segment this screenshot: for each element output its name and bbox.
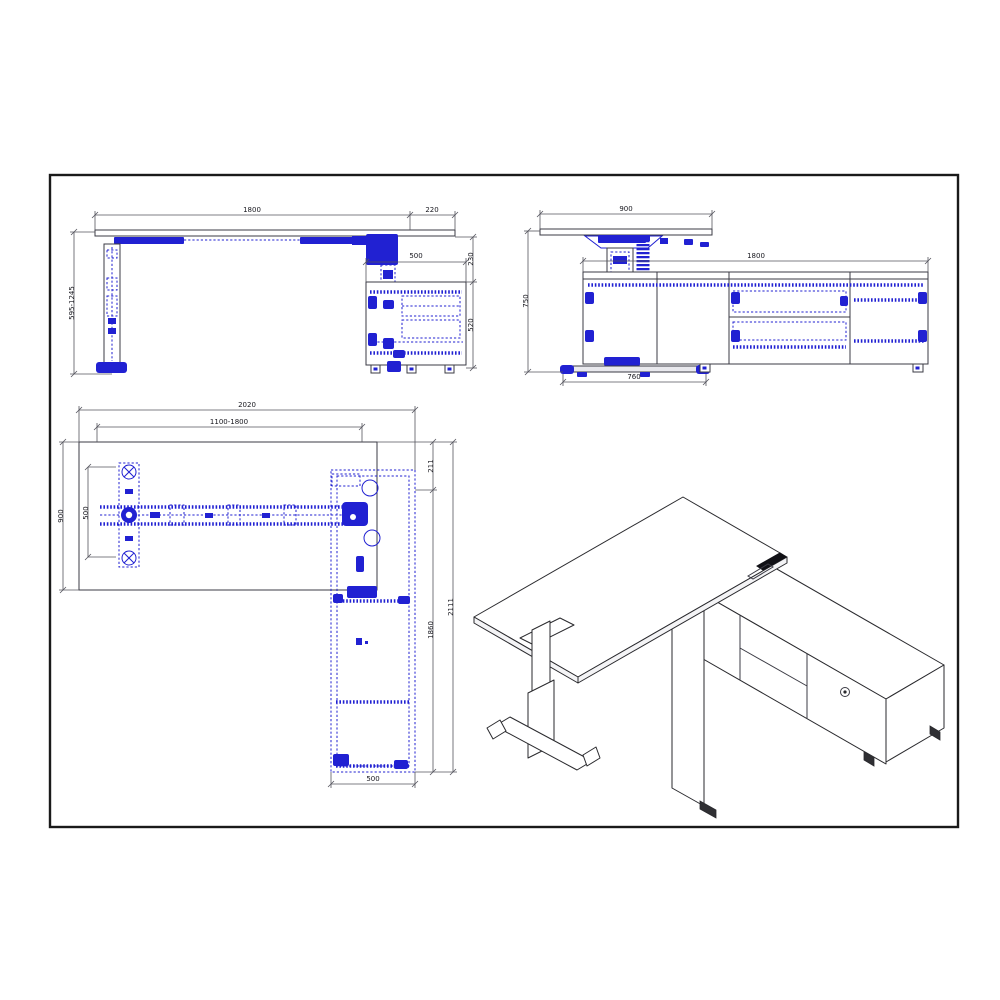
side-foot-plate: [563, 366, 708, 372]
dim-plan-overall-length: 2020: [238, 401, 256, 409]
hinge-icon: [368, 296, 377, 309]
side-desk-top: [540, 229, 712, 235]
iso-foot: [700, 801, 716, 818]
front-left-foot: [96, 362, 127, 373]
hinge-icon: [918, 330, 927, 342]
isometric-view: [474, 497, 944, 818]
hinge-icon: [585, 330, 594, 342]
front-cabinet-feet: [371, 365, 454, 373]
dim-front-top-width: 1800: [243, 206, 261, 214]
hinge-icon: [731, 292, 740, 304]
dim-side-top-depth: 900: [619, 205, 632, 213]
front-cabinet: [366, 282, 466, 373]
iso-t-foot-cap: [583, 747, 600, 766]
plan-view: 2020 1100-1800 900 500 211 1860 2111: [57, 401, 457, 788]
drawing-sheet: 1800 220 500 230 520 595-1245: [0, 0, 1000, 1000]
dim-front-cabinet-height: 520: [467, 318, 475, 331]
dim-plan-return-width: 500: [366, 775, 379, 783]
side-elevation-view: 900 1800 750 760: [522, 205, 931, 386]
side-cabinet: [583, 272, 928, 364]
dim-side-foot-length: 760: [627, 373, 640, 381]
dim-front-gap: 230: [467, 252, 475, 265]
side-column-foot: [604, 357, 640, 366]
dim-plan-top-depth: 900: [57, 509, 65, 522]
front-left-leg: [96, 244, 127, 373]
dim-front-height-range: 595-1245: [68, 286, 76, 320]
dim-side-height: 750: [522, 294, 530, 307]
cad-drawing-canvas: 1800 220 500 230 520 595-1245: [0, 0, 1000, 1000]
hinge-icon: [585, 292, 594, 304]
front-desk-top: [95, 230, 455, 236]
front-elevation-view: 1800 220 500 230 520 595-1245: [68, 206, 477, 377]
hinge-icon: [918, 292, 927, 304]
dim-plan-overall-depth: 2111: [447, 598, 455, 616]
dim-plan-adjustable-span: 1100-1800: [210, 418, 248, 426]
dim-plan-corner-offset: 211: [427, 459, 435, 472]
dim-plan-return-length: 1860: [427, 621, 435, 639]
hinge-icon: [368, 333, 377, 346]
plan-cabinet-mark: [356, 638, 362, 645]
dim-side-cabinet-length: 1800: [747, 252, 765, 260]
dim-front-cabinet-width: 500: [409, 252, 422, 260]
dim-front-overhang: 220: [425, 206, 438, 214]
dim-plan-foot-span: 500: [82, 506, 90, 519]
front-underframe-hardware: [114, 234, 398, 265]
front-column-foot: [387, 361, 401, 372]
hinge-icon: [731, 330, 740, 342]
